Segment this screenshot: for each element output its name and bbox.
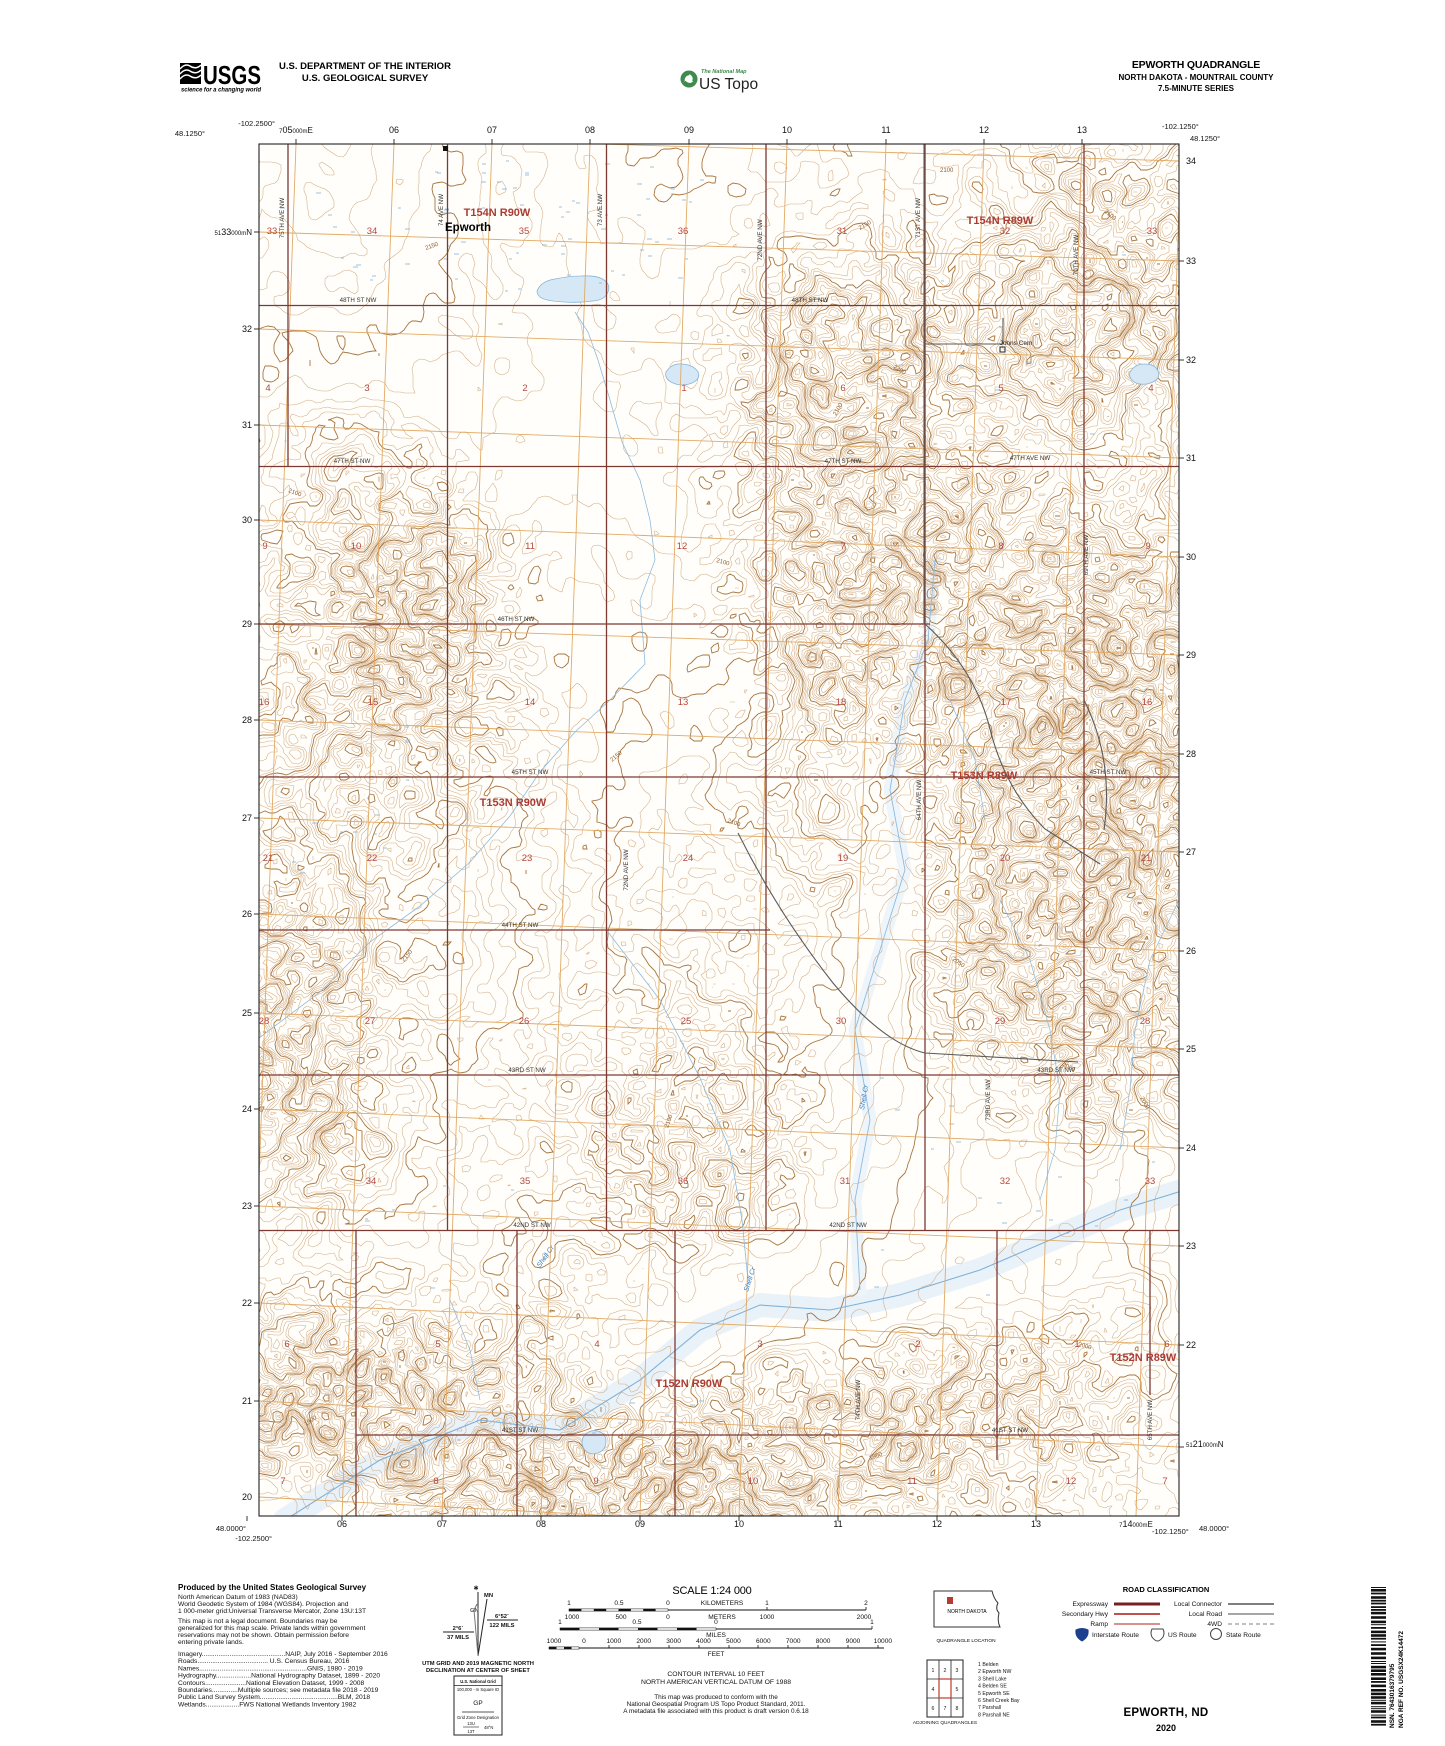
svg-text:10: 10 — [748, 1476, 759, 1487]
svg-text:30: 30 — [1186, 552, 1196, 562]
svg-text:1000: 1000 — [547, 1638, 562, 1645]
svg-text:NSN. 7643016379795: NSN. 7643016379795 — [1389, 1663, 1396, 1728]
svg-text:11: 11 — [833, 1519, 842, 1529]
svg-text:NGA REF NO. USGSX24K14472: NGA REF NO. USGSX24K14472 — [1398, 1631, 1405, 1728]
svg-text:1: 1 — [870, 1619, 874, 1626]
svg-text:Local Connector: Local Connector — [1174, 1601, 1223, 1608]
svg-text:31: 31 — [242, 420, 252, 430]
svg-text:07: 07 — [437, 1519, 447, 1529]
svg-text:06: 06 — [389, 125, 399, 135]
svg-text:8: 8 — [998, 541, 1003, 552]
svg-text:26: 26 — [242, 909, 252, 919]
svg-text:71ST AVE NW: 71ST AVE NW — [915, 198, 922, 238]
svg-text:Hydrography...................: Hydrography...................National H… — [178, 1673, 380, 1680]
svg-text:13U: 13U — [467, 1721, 475, 1726]
svg-text:ROAD CLASSIFICATION: ROAD CLASSIFICATION — [1123, 1585, 1210, 1594]
svg-text:33: 33 — [1145, 1176, 1156, 1187]
svg-text:US Topo: US Topo — [699, 76, 758, 93]
svg-text:8 Parshall NE: 8 Parshall NE — [978, 1712, 1010, 1718]
svg-text:25: 25 — [242, 1008, 252, 1018]
svg-text:23: 23 — [522, 853, 533, 864]
svg-text:7: 7 — [840, 541, 845, 552]
svg-text:Produced by the United States: Produced by the United States Geological… — [178, 1583, 367, 1592]
svg-text:science for a changing world: science for a changing world — [181, 87, 262, 94]
svg-text:11: 11 — [525, 541, 535, 552]
svg-text:21: 21 — [263, 853, 274, 864]
svg-text:72ND AVE NW: 72ND AVE NW — [623, 849, 630, 890]
svg-text:8: 8 — [956, 1706, 959, 1712]
svg-text:Ramp: Ramp — [1090, 1621, 1108, 1628]
svg-text:World Geodetic System of 1984: World Geodetic System of 1984 (WGS84). P… — [178, 1601, 349, 1608]
svg-text:9: 9 — [593, 1476, 598, 1487]
svg-text:24: 24 — [683, 853, 694, 864]
svg-text:23: 23 — [1186, 1241, 1196, 1251]
svg-text:36: 36 — [678, 1176, 689, 1187]
svg-text:2000: 2000 — [636, 1638, 651, 1645]
svg-text:This map is not a legal docume: This map is not a legal document. Bounda… — [178, 1618, 338, 1625]
svg-text:09: 09 — [684, 125, 694, 135]
svg-text:12: 12 — [932, 1519, 942, 1529]
svg-text:9: 9 — [1145, 541, 1150, 552]
svg-text:48.1250°: 48.1250° — [1190, 134, 1220, 143]
svg-text:47TH ST NW: 47TH ST NW — [334, 458, 371, 465]
svg-text:42ND ST NW: 42ND ST NW — [829, 1222, 867, 1229]
svg-text:MN: MN — [484, 1593, 493, 1599]
svg-text:Local Road: Local Road — [1189, 1611, 1223, 1618]
svg-text:1: 1 — [932, 1668, 935, 1674]
svg-text:1 000-meter grid:Universal Tra: 1 000-meter grid:Universal Transverse Me… — [178, 1608, 366, 1615]
svg-text:34: 34 — [367, 226, 378, 237]
svg-text:National Geospatial Program US: National Geospatial Program US Topo Prod… — [627, 1701, 806, 1708]
svg-text:9: 9 — [262, 541, 267, 552]
svg-text:Interstate Route: Interstate Route — [1092, 1632, 1139, 1639]
svg-text:2: 2 — [522, 383, 527, 394]
svg-text:UTM GRID AND 2019 MAGNETIC NOR: UTM GRID AND 2019 MAGNETIC NORTH — [422, 1661, 534, 1667]
svg-text:T152N R89W: T152N R89W — [1110, 1352, 1177, 1364]
svg-text:4: 4 — [265, 383, 270, 394]
svg-text:42ND ST NW: 42ND ST NW — [513, 1222, 551, 1229]
svg-text:U.S. National Grid: U.S. National Grid — [460, 1679, 496, 1684]
svg-text:2: 2 — [864, 1600, 868, 1607]
svg-text:73RD AVE NW: 73RD AVE NW — [985, 1079, 992, 1120]
svg-text:3000: 3000 — [666, 1638, 681, 1645]
svg-text:10: 10 — [351, 541, 362, 552]
svg-text:Grid Zone Designation: Grid Zone Designation — [457, 1715, 500, 1720]
svg-text:2020: 2020 — [1156, 1723, 1176, 1733]
svg-text:74 AVE NW: 74 AVE NW — [438, 194, 445, 226]
svg-text:3: 3 — [956, 1668, 959, 1674]
svg-text:32: 32 — [242, 324, 252, 334]
svg-text:26: 26 — [519, 1016, 530, 1027]
svg-text:13T: 13T — [467, 1729, 475, 1734]
svg-text:NORTH AMERICAN VERTICAL DATUM: NORTH AMERICAN VERTICAL DATUM OF 1988 — [641, 1679, 791, 1686]
svg-text:0: 0 — [582, 1638, 586, 1645]
svg-text:METERS: METERS — [708, 1614, 736, 1621]
svg-text:15: 15 — [368, 697, 379, 708]
svg-text:T153N R89W: T153N R89W — [951, 770, 1018, 782]
svg-text:7.5-MINUTE SERIES: 7.5-MINUTE SERIES — [1158, 84, 1235, 93]
svg-text:6: 6 — [284, 1339, 289, 1350]
svg-text:08: 08 — [536, 1519, 546, 1529]
svg-text:U.S. DEPARTMENT OF THE INTERIO: U.S. DEPARTMENT OF THE INTERIOR — [279, 61, 451, 72]
svg-text:45TH ST NW: 45TH ST NW — [1090, 769, 1127, 776]
svg-text:74TH AVE NW: 74TH AVE NW — [855, 1380, 862, 1421]
svg-text:SCALE 1:24 000: SCALE 1:24 000 — [672, 1585, 751, 1597]
svg-text:48TH ST NW: 48TH ST NW — [792, 297, 829, 304]
svg-text:8000: 8000 — [816, 1638, 831, 1645]
svg-text:2°6´: 2°6´ — [453, 1626, 464, 1632]
svg-text:46TH ST NW: 46TH ST NW — [498, 616, 535, 623]
svg-text:4: 4 — [1148, 383, 1153, 394]
svg-text:13: 13 — [678, 697, 689, 708]
svg-text:48°N: 48°N — [484, 1725, 493, 1730]
svg-text:34: 34 — [1186, 156, 1196, 166]
svg-text:1: 1 — [558, 1619, 562, 1626]
svg-text:30: 30 — [836, 1016, 847, 1027]
svg-text:State Route: State Route — [1226, 1632, 1261, 1639]
svg-text:122 MILS: 122 MILS — [489, 1623, 514, 1629]
svg-text:28: 28 — [242, 715, 252, 725]
svg-text:0: 0 — [666, 1600, 670, 1607]
svg-text:US Route: US Route — [1168, 1632, 1197, 1639]
svg-text:10000: 10000 — [874, 1638, 893, 1645]
svg-text:26: 26 — [1186, 946, 1196, 956]
svg-text:generalized for this map scale: generalized for this map scale. Private … — [178, 1625, 365, 1632]
svg-text:-102.2500°: -102.2500° — [235, 1534, 272, 1543]
svg-text:45TH ST NW: 45TH ST NW — [512, 769, 549, 776]
svg-text:entering private lands.: entering private lands. — [178, 1639, 244, 1646]
svg-text:25: 25 — [1186, 1044, 1196, 1054]
svg-text:6: 6 — [840, 383, 845, 394]
svg-text:7: 7 — [280, 1476, 285, 1487]
svg-text:7: 7 — [1162, 1476, 1167, 1487]
svg-text:1000: 1000 — [565, 1614, 580, 1621]
svg-text:20: 20 — [1000, 853, 1011, 864]
svg-text:16: 16 — [259, 697, 270, 708]
svg-text:35: 35 — [520, 1176, 531, 1187]
svg-text:Public Land Survey Syste: Public Land Survey System...............… — [178, 1694, 370, 1701]
svg-text:27: 27 — [365, 1016, 376, 1027]
svg-text:1000: 1000 — [760, 1614, 775, 1621]
svg-text:48.1250°: 48.1250° — [175, 129, 205, 138]
svg-text:2: 2 — [915, 1339, 920, 1350]
svg-text:North American Datum of 1983 (: North American Datum of 1983 (NAD83) — [178, 1594, 298, 1601]
svg-text:3 Shell Lake: 3 Shell Lake — [978, 1676, 1007, 1682]
svg-text:This map was produced to confo: This map was produced to conform with th… — [654, 1694, 778, 1701]
svg-text:09: 09 — [635, 1519, 645, 1529]
svg-text:32: 32 — [1186, 355, 1196, 365]
svg-text:GP: GP — [473, 1700, 482, 1707]
svg-text:18: 18 — [836, 697, 847, 708]
svg-text:34: 34 — [366, 1176, 377, 1187]
svg-text:U.S. GEOLOGICAL SURVEY: U.S. GEOLOGICAL SURVEY — [302, 73, 429, 84]
svg-text:08: 08 — [585, 125, 595, 135]
svg-text:7000: 7000 — [786, 1638, 801, 1645]
svg-text:EPWORTH, ND: EPWORTH, ND — [1123, 1707, 1208, 1719]
svg-text:2: 2 — [944, 1668, 947, 1674]
svg-text:13: 13 — [1031, 1519, 1041, 1529]
svg-text:41ST ST NW: 41ST ST NW — [502, 1427, 538, 1434]
svg-text:27: 27 — [242, 813, 252, 823]
svg-text:12: 12 — [1066, 1476, 1077, 1487]
svg-text:35: 35 — [519, 226, 530, 237]
svg-text:33: 33 — [267, 226, 278, 237]
svg-text:12: 12 — [677, 541, 688, 552]
svg-text:75TH AVE NW: 75TH AVE NW — [279, 198, 286, 239]
svg-text:T153N R90W: T153N R90W — [480, 797, 547, 809]
svg-text:32: 32 — [1000, 226, 1011, 237]
svg-text:31: 31 — [840, 1176, 851, 1187]
svg-text:31: 31 — [837, 226, 848, 237]
svg-text:6: 6 — [932, 1706, 935, 1712]
svg-text:37 MILS: 37 MILS — [447, 1635, 469, 1641]
svg-text:25: 25 — [681, 1016, 692, 1027]
svg-text:100,000 - m Square ID: 100,000 - m Square ID — [457, 1687, 499, 1692]
svg-text:11: 11 — [907, 1476, 917, 1487]
svg-text:22: 22 — [367, 853, 378, 864]
svg-text:13: 13 — [1077, 125, 1087, 135]
svg-text:06: 06 — [337, 1519, 347, 1529]
svg-text:11: 11 — [881, 125, 890, 135]
svg-text:The National Map: The National Map — [701, 69, 747, 75]
svg-text:23: 23 — [242, 1201, 252, 1211]
svg-text:7: 7 — [944, 1706, 947, 1712]
svg-text:-102.2500°: -102.2500° — [238, 119, 275, 128]
svg-text:∗: ∗ — [473, 1585, 479, 1592]
svg-text:24: 24 — [242, 1104, 252, 1114]
svg-text:8: 8 — [433, 1476, 438, 1487]
svg-text:17: 17 — [1001, 697, 1012, 708]
svg-text:-102.1250°: -102.1250° — [1162, 122, 1199, 131]
svg-text:33: 33 — [1186, 256, 1196, 266]
svg-text:6 Shell Creek Bay: 6 Shell Creek Bay — [978, 1698, 1020, 1704]
svg-text:29: 29 — [242, 619, 252, 629]
svg-text:07: 07 — [487, 125, 497, 135]
svg-text:43RD ST NW: 43RD ST NW — [508, 1067, 546, 1074]
svg-text:4 Belden SE: 4 Belden SE — [978, 1684, 1007, 1690]
svg-text:2 Epworth NW: 2 Epworth NW — [978, 1669, 1012, 1675]
svg-text:Expressway: Expressway — [1072, 1601, 1108, 1608]
svg-text:21: 21 — [1141, 853, 1152, 864]
svg-text:1: 1 — [765, 1600, 769, 1607]
svg-text:5000: 5000 — [726, 1638, 741, 1645]
svg-text:48TH ST NW: 48TH ST NW — [340, 297, 377, 304]
svg-text:32: 32 — [1000, 1176, 1011, 1187]
svg-text:47TH ST NW: 47TH ST NW — [825, 458, 862, 465]
svg-text:GN: GN — [470, 1608, 479, 1614]
svg-text:ADJOINING QUADRANGLES: ADJOINING QUADRANGLES — [913, 1720, 977, 1726]
svg-text:22: 22 — [1186, 1340, 1196, 1350]
svg-text:6: 6 — [1164, 1339, 1169, 1350]
svg-text:10: 10 — [782, 125, 792, 135]
svg-text:70TH AVE NW: 70TH AVE NW — [1073, 235, 1080, 276]
svg-text:24: 24 — [1186, 1143, 1196, 1153]
svg-text:0: 0 — [714, 1619, 718, 1626]
svg-text:A metadata file associated wit: A metadata file associated with this pro… — [623, 1708, 809, 1715]
svg-text:36: 36 — [678, 226, 689, 237]
svg-text:12: 12 — [979, 125, 989, 135]
svg-text:28: 28 — [1140, 1016, 1151, 1027]
svg-text:14: 14 — [525, 697, 536, 708]
svg-text:48.0000°: 48.0000° — [1199, 1524, 1229, 1533]
svg-text:-102.1250°: -102.1250° — [1152, 1527, 1189, 1536]
svg-text:29: 29 — [995, 1016, 1006, 1027]
svg-text:1: 1 — [681, 383, 686, 394]
svg-text:Boundaries..............Multip: Boundaries..............Multiple sources… — [178, 1687, 379, 1694]
svg-text:KILOMETERS: KILOMETERS — [701, 1600, 744, 1607]
svg-text:T154N R90W: T154N R90W — [464, 207, 531, 219]
svg-text:9000: 9000 — [846, 1638, 861, 1645]
svg-text:QUADRANGLE LOCATION: QUADRANGLE LOCATION — [936, 1638, 996, 1644]
svg-text:reservations may not be shown.: reservations may not be shown. Obtain pe… — [178, 1632, 349, 1639]
svg-text:48.0000°: 48.0000° — [216, 1524, 246, 1533]
svg-text:73 AVE NW: 73 AVE NW — [597, 194, 604, 226]
svg-text:5 Epworth SE: 5 Epworth SE — [978, 1691, 1010, 1697]
svg-text:Johns Cem: Johns Cem — [1000, 340, 1033, 347]
svg-text:0.5: 0.5 — [614, 1600, 623, 1607]
svg-text:27: 27 — [1186, 847, 1196, 857]
svg-text:NORTH DAKOTA: NORTH DAKOTA — [947, 1609, 987, 1615]
svg-text:19: 19 — [838, 853, 849, 864]
svg-text:69TH AVE NW: 69TH AVE NW — [1083, 535, 1090, 576]
svg-text:Roads.........................: Roads...................................… — [178, 1658, 350, 1665]
svg-text:EPWORTH QUADRANGLE: EPWORTH QUADRANGLE — [1132, 59, 1260, 71]
svg-text:41ST ST NW: 41ST ST NW — [992, 1427, 1028, 1434]
svg-text:64TH AVE NW: 64TH AVE NW — [916, 780, 923, 821]
svg-text:500: 500 — [615, 1614, 626, 1621]
svg-text:CONTOUR INTERVAL 10 FEET: CONTOUR INTERVAL 10 FEET — [667, 1671, 764, 1678]
svg-text:3: 3 — [364, 383, 369, 394]
svg-text:0: 0 — [666, 1614, 670, 1621]
svg-text:6000: 6000 — [756, 1638, 771, 1645]
svg-text:USGS: USGS — [203, 60, 261, 90]
svg-text:4: 4 — [594, 1339, 599, 1350]
svg-text:28: 28 — [259, 1016, 270, 1027]
svg-text:5: 5 — [435, 1339, 440, 1350]
svg-text:4000: 4000 — [696, 1638, 711, 1645]
svg-text:3: 3 — [757, 1339, 762, 1350]
svg-text:Names.........................: Names...................................… — [178, 1665, 363, 1672]
svg-text:7 Parshall: 7 Parshall — [978, 1705, 1001, 1711]
svg-text:Imagery.......................: Imagery.................................… — [178, 1651, 388, 1658]
svg-text:72ND AVE NW: 72ND AVE NW — [757, 219, 764, 260]
svg-text:28: 28 — [1186, 749, 1196, 759]
svg-text:21: 21 — [242, 1396, 252, 1406]
svg-text:NORTH DAKOTA - MOUNTRAIL COUNT: NORTH DAKOTA - MOUNTRAIL COUNTY — [1119, 73, 1275, 82]
svg-text:29: 29 — [1186, 650, 1196, 660]
svg-text:Wetlands..................FWS: Wetlands..................FWS National W… — [178, 1701, 356, 1708]
svg-text:Epworth: Epworth — [445, 222, 491, 234]
svg-text:2100: 2100 — [940, 168, 954, 174]
svg-text:10: 10 — [734, 1519, 744, 1529]
svg-text:44TH ST NW: 44TH ST NW — [502, 922, 539, 929]
svg-text:30: 30 — [242, 515, 252, 525]
svg-text:1000: 1000 — [606, 1638, 621, 1645]
svg-text:20: 20 — [242, 1492, 252, 1502]
svg-text:5: 5 — [956, 1687, 959, 1693]
svg-text:16: 16 — [1142, 697, 1153, 708]
svg-text:47TH AVE NW: 47TH AVE NW — [1010, 455, 1051, 462]
svg-text:DECLINATION AT CENTER OF SHEET: DECLINATION AT CENTER OF SHEET — [426, 1668, 530, 1674]
svg-text:33: 33 — [1147, 226, 1158, 237]
svg-text:65TH AVE NW: 65TH AVE NW — [1147, 1400, 1154, 1441]
svg-text:5: 5 — [998, 383, 1003, 394]
svg-text:T152N R90W: T152N R90W — [656, 1378, 723, 1390]
svg-text:22: 22 — [242, 1298, 252, 1308]
svg-text:1 Belden: 1 Belden — [978, 1662, 999, 1668]
svg-text:4: 4 — [932, 1687, 935, 1693]
svg-text:Secondary Hwy: Secondary Hwy — [1062, 1611, 1109, 1618]
svg-text:31: 31 — [1186, 453, 1196, 463]
svg-text:FEET: FEET — [708, 1651, 725, 1658]
svg-text:4WD: 4WD — [1207, 1621, 1222, 1628]
svg-text:6°52´: 6°52´ — [495, 1614, 509, 1620]
svg-text:0.5: 0.5 — [632, 1619, 641, 1626]
svg-text:Contours......................: Contours......................National E… — [178, 1680, 365, 1687]
svg-text:1: 1 — [567, 1600, 571, 1607]
